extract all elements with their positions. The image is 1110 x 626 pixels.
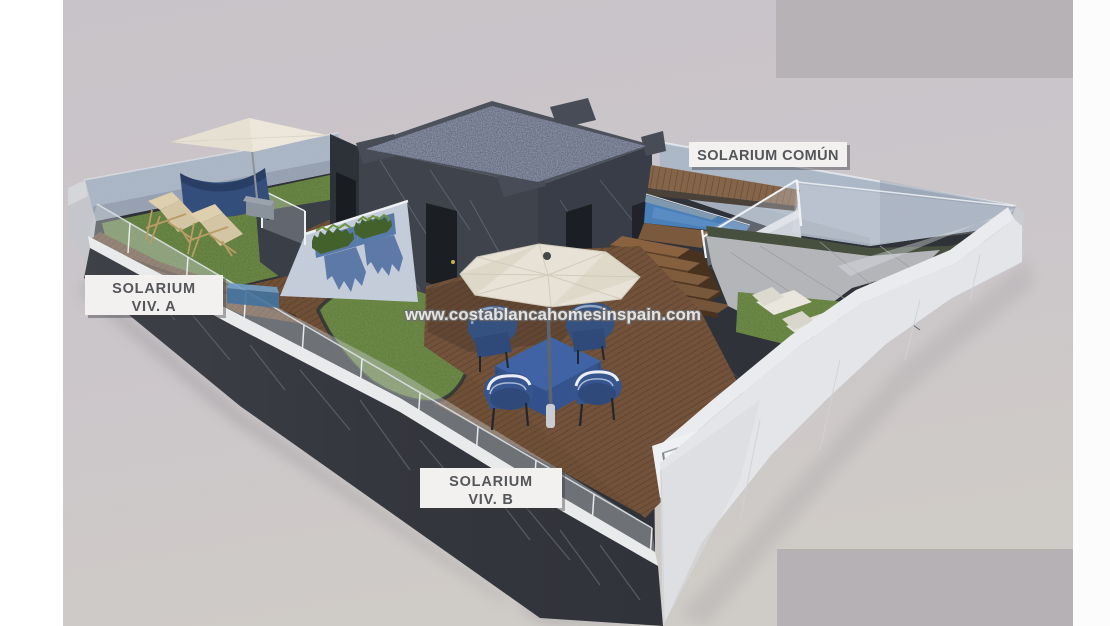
svg-text:VIV. B: VIV. B	[468, 492, 513, 508]
svg-text:VIV. A: VIV. A	[132, 299, 177, 315]
svg-text:SOLARIUM: SOLARIUM	[449, 474, 533, 490]
svg-text:SOLARIUM COMÚN: SOLARIUM COMÚN	[697, 146, 839, 164]
svg-text:www.costablancahomesinspain.co: www.costablancahomesinspain.com	[404, 305, 701, 324]
svg-text:SOLARIUM: SOLARIUM	[112, 281, 196, 297]
